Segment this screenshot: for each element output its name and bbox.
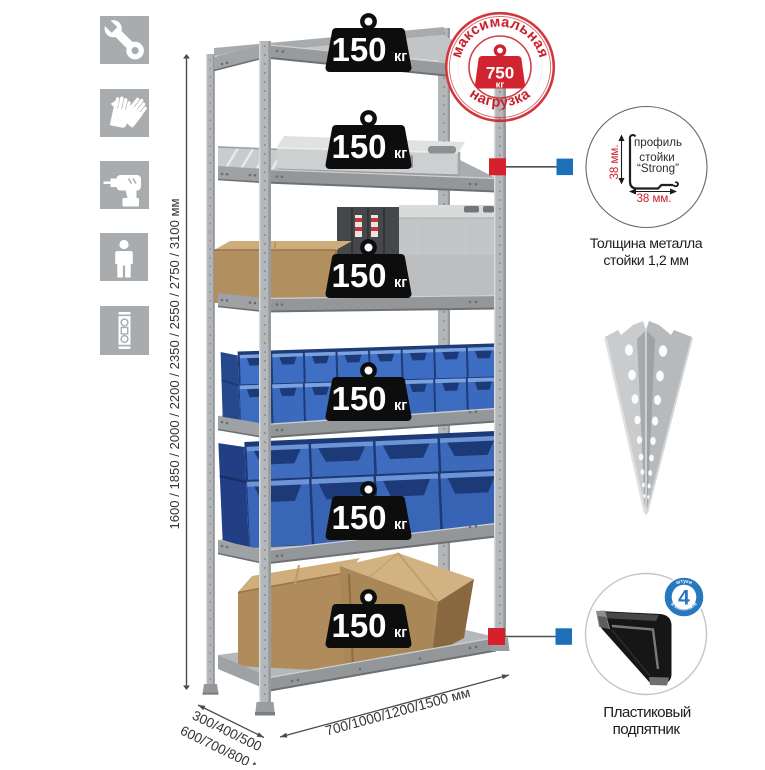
svg-text:150: 150 bbox=[331, 31, 386, 68]
svg-text:150: 150 bbox=[331, 380, 386, 417]
svg-text:38 мм.: 38 мм. bbox=[637, 193, 672, 205]
svg-text:Пластиковый: Пластиковый bbox=[603, 704, 691, 721]
svg-text:150: 150 bbox=[331, 128, 386, 165]
svg-text:1600 / 1850 / 2000 / 2200 / 23: 1600 / 1850 / 2000 / 2200 / 2350 / 2550 … bbox=[167, 198, 182, 529]
svg-text:подпятник: подпятник bbox=[613, 721, 681, 738]
svg-text:кг: кг bbox=[394, 146, 407, 162]
svg-text:150: 150 bbox=[331, 607, 386, 644]
svg-text:38 мм.: 38 мм. bbox=[609, 145, 621, 180]
svg-text:кг: кг bbox=[394, 625, 407, 641]
svg-text:профиль: профиль bbox=[634, 136, 682, 149]
svg-text:кг: кг bbox=[394, 275, 407, 291]
svg-text:кг: кг bbox=[496, 80, 505, 91]
svg-text:кг: кг bbox=[394, 517, 407, 533]
svg-text:кг: кг bbox=[394, 398, 407, 414]
svg-text:150: 150 bbox=[331, 257, 386, 294]
svg-text:стойки 1,2 мм: стойки 1,2 мм bbox=[603, 253, 688, 269]
svg-text:Толщина металла: Толщина металла bbox=[590, 236, 703, 252]
svg-text:150: 150 bbox=[331, 499, 386, 536]
svg-text:кг: кг bbox=[394, 49, 407, 65]
svg-text:“Strong”: “Strong” bbox=[637, 162, 679, 175]
